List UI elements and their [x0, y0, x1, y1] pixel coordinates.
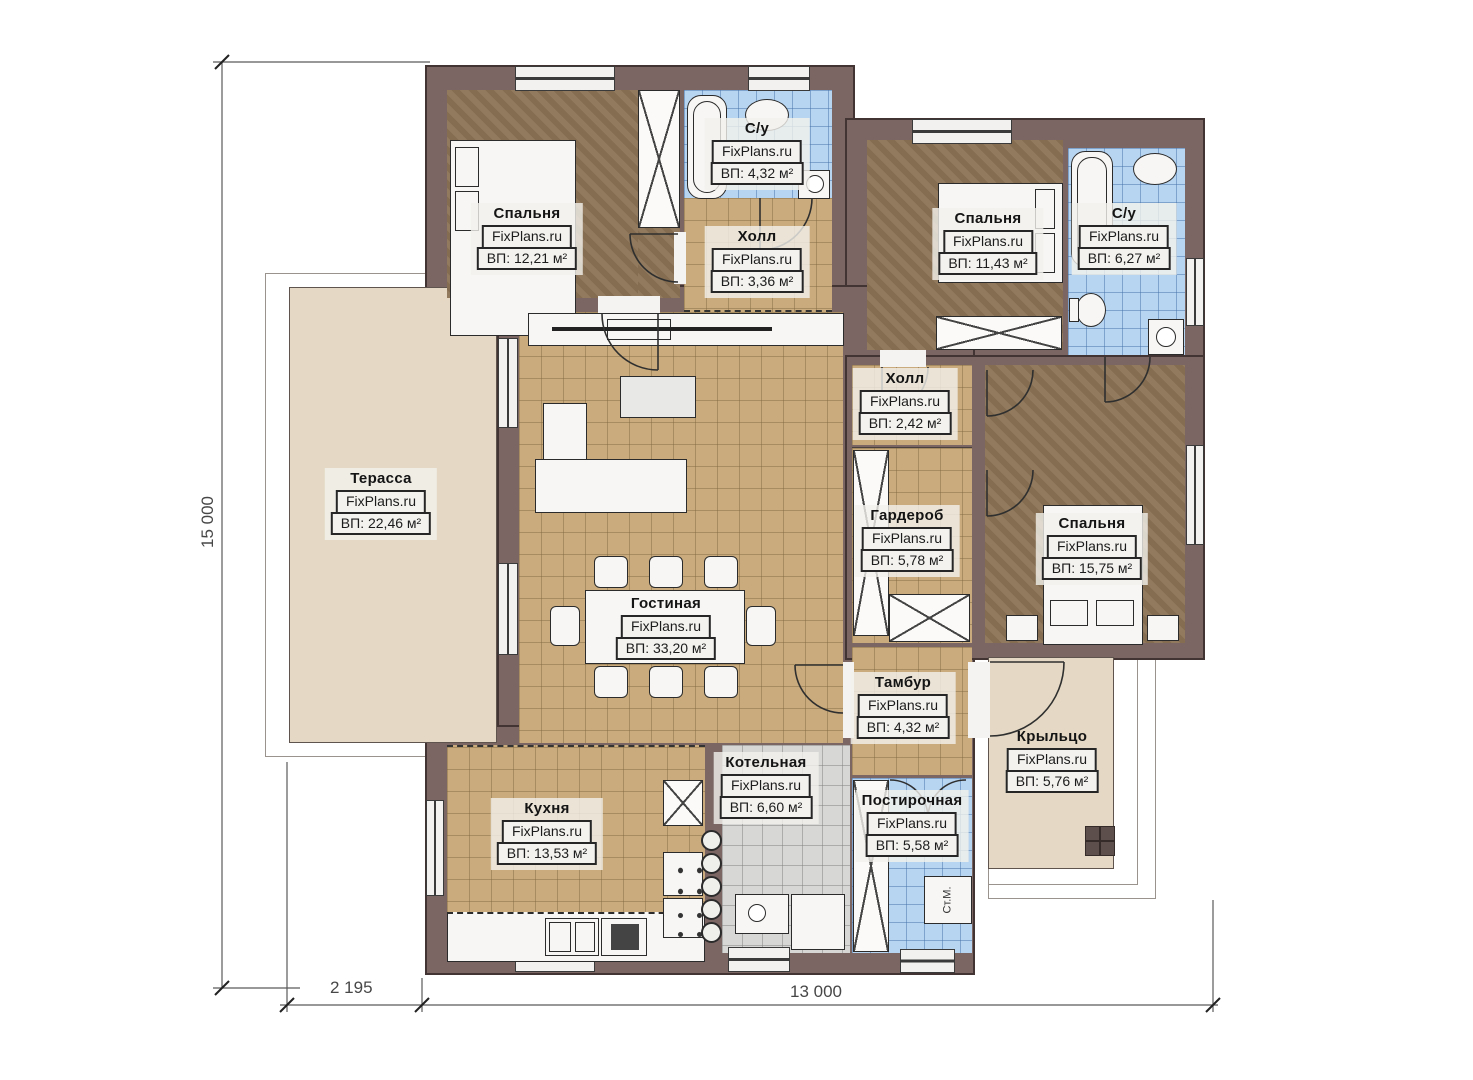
room-name: Крыльцо	[1017, 728, 1087, 745]
window-bedroom3-right	[1186, 445, 1204, 545]
room-name: Холл	[886, 370, 925, 387]
room-area: ВП: 5,76 м²	[1006, 770, 1099, 794]
stove	[663, 852, 703, 896]
watermark: FixPlans.ru	[867, 812, 957, 836]
room-name: Гардероб	[870, 507, 943, 524]
room-name: Спальня	[1059, 515, 1126, 532]
chair	[594, 556, 628, 588]
room-label-boiler: Котельная FixPlans.ru ВП: 6,60 м²	[714, 752, 819, 824]
chair	[649, 666, 683, 698]
heating-manifold-dial	[701, 922, 722, 943]
heating-manifold-dial	[701, 899, 722, 920]
chair	[594, 666, 628, 698]
room-area: ВП: 22,46 м²	[331, 512, 431, 536]
chair	[704, 666, 738, 698]
heating-manifold-dial	[701, 830, 722, 851]
pillow	[1096, 600, 1134, 626]
door-gap-front-door	[968, 662, 990, 738]
kitchen-sink-bowl	[549, 922, 571, 952]
room-area: ВП: 12,21 м²	[477, 247, 577, 271]
room-area: ВП: 2,42 м²	[859, 412, 952, 436]
chair	[704, 556, 738, 588]
porch-foot-scraper	[1085, 826, 1115, 856]
room-area: ВП: 4,32 м²	[857, 716, 950, 740]
watermark: FixPlans.ru	[943, 230, 1033, 254]
room-label-hall2: Холл FixPlans.ru ВП: 2,42 м²	[853, 368, 958, 440]
toilet-bathroom2	[1076, 293, 1106, 327]
room-area: ВП: 3,36 м²	[711, 270, 804, 294]
room-label-bathroom2: С/у FixPlans.ru ВП: 6,27 м²	[1072, 203, 1177, 275]
room-label-bedroom1: Спальня FixPlans.ru ВП: 12,21 м²	[471, 203, 583, 275]
tv-icon	[552, 327, 772, 331]
nightstand	[1006, 615, 1038, 641]
dimension-label-height: 15 000	[198, 496, 218, 548]
door-gap-bedroom1	[598, 296, 660, 314]
room-name: С/у	[745, 120, 769, 137]
heating-manifold-dial	[701, 853, 722, 874]
oven	[663, 898, 703, 938]
window-living-left-2	[498, 563, 518, 655]
room-name: Постирочная	[862, 792, 963, 809]
room-name: Котельная	[725, 754, 806, 771]
room-label-wardrobe: Гардероб FixPlans.ru ВП: 5,78 м²	[855, 505, 960, 577]
watermark: FixPlans.ru	[621, 615, 711, 639]
room-name: Терасса	[350, 470, 412, 487]
watermark: FixPlans.ru	[502, 820, 592, 844]
dimension-label-terrace-width: 2 195	[330, 978, 373, 998]
watermark: FixPlans.ru	[712, 140, 802, 164]
pillow	[455, 147, 479, 187]
room-name: Спальня	[955, 210, 1022, 227]
coffee-table	[620, 376, 696, 418]
sink-bathroom2	[1133, 153, 1177, 185]
watermark: FixPlans.ru	[721, 774, 811, 798]
room-name: Спальня	[494, 205, 561, 222]
nightstand	[1147, 615, 1179, 641]
room-name: Гостиная	[631, 595, 701, 612]
room-area: ВП: 5,58 м²	[866, 834, 959, 858]
door-gap-bedroom1-hall	[674, 232, 686, 284]
room-label-hall1: Холл FixPlans.ru ВП: 3,36 м²	[705, 226, 810, 298]
room-label-bedroom3: Спальня FixPlans.ru ВП: 15,75 м²	[1036, 513, 1148, 585]
door-gap-bedroom2	[880, 350, 926, 367]
dimension-label-house-width: 13 000	[790, 982, 842, 1002]
watermark: FixPlans.ru	[858, 694, 948, 718]
washer-door-icon	[1156, 327, 1176, 347]
room-area: ВП: 15,75 м²	[1042, 557, 1142, 581]
window-kitchen-left	[426, 800, 444, 896]
kitchen-sink-bowl	[575, 922, 595, 952]
toilet-tank	[1069, 298, 1079, 322]
sofa-bottom-section	[535, 459, 687, 513]
room-area: ВП: 5,78 м²	[861, 549, 954, 573]
boiler-tank	[791, 894, 845, 950]
room-label-terrace: Терасса FixPlans.ru ВП: 22,46 м²	[325, 468, 437, 540]
window-bedroom2-top	[912, 119, 1012, 144]
pillow	[1050, 600, 1088, 626]
watermark: FixPlans.ru	[860, 390, 950, 414]
watermark: FixPlans.ru	[1007, 748, 1097, 772]
window-bedroom1-top	[515, 66, 615, 91]
room-area: ВП: 4,32 м²	[711, 162, 804, 186]
room-name: Холл	[738, 228, 777, 245]
floor-plan-canvas: Ст.М.	[0, 0, 1473, 1080]
tick	[280, 998, 294, 1012]
room-label-bedroom2: Спальня FixPlans.ru ВП: 11,43 м²	[932, 208, 1043, 280]
tick	[215, 981, 229, 995]
room-label-laundry: Постирочная FixPlans.ru ВП: 5,58 м²	[856, 790, 969, 862]
watermark: FixPlans.ru	[862, 527, 952, 551]
watermark: FixPlans.ru	[712, 248, 802, 272]
room-label-bathroom1: С/у FixPlans.ru ВП: 4,32 м²	[705, 118, 810, 190]
fridge	[663, 780, 703, 826]
window-bathroom2-right	[1186, 258, 1204, 326]
watermark: FixPlans.ru	[336, 490, 426, 514]
room-label-kitchen: Кухня FixPlans.ru ВП: 13,53 м²	[491, 798, 603, 870]
tick	[415, 998, 429, 1012]
chair	[550, 606, 580, 646]
heating-manifold-dial	[701, 876, 722, 897]
tick	[215, 55, 229, 69]
tick	[1206, 998, 1220, 1012]
window-living-left-1	[498, 338, 518, 428]
window-laundry-bottom	[900, 949, 955, 973]
room-label-tambour: Тамбур FixPlans.ru ВП: 4,32 м²	[851, 672, 956, 744]
watermark: FixPlans.ru	[482, 225, 572, 249]
room-label-living: Гостиная FixPlans.ru ВП: 33,20 м²	[610, 593, 722, 665]
watermark: FixPlans.ru	[1047, 535, 1137, 559]
watermark: FixPlans.ru	[1079, 225, 1169, 249]
dishwasher-front	[611, 924, 639, 950]
room-name: С/у	[1112, 205, 1136, 222]
room-name: Кухня	[524, 800, 569, 817]
room-label-porch: Крыльцо FixPlans.ru ВП: 5,76 м²	[1000, 726, 1105, 798]
room-area: ВП: 33,20 м²	[616, 637, 716, 661]
room-area: ВП: 13,53 м²	[497, 842, 597, 866]
chair	[746, 606, 776, 646]
room-area: ВП: 11,43 м²	[938, 252, 1037, 276]
wardrobe-bedroom2	[936, 316, 1062, 350]
window-bathroom1-top	[748, 66, 810, 91]
washing-machine-label: Ст.М.	[942, 886, 954, 913]
room-area: ВП: 6,60 м²	[720, 796, 813, 820]
bedroom1-wardrobe	[638, 90, 680, 228]
room-name: Тамбур	[875, 674, 931, 691]
boiler-dial	[748, 904, 766, 922]
wardrobe-bottom	[889, 594, 970, 642]
chair	[649, 556, 683, 588]
room-area: ВП: 6,27 м²	[1078, 247, 1171, 271]
window-boiler-bottom	[728, 947, 790, 972]
